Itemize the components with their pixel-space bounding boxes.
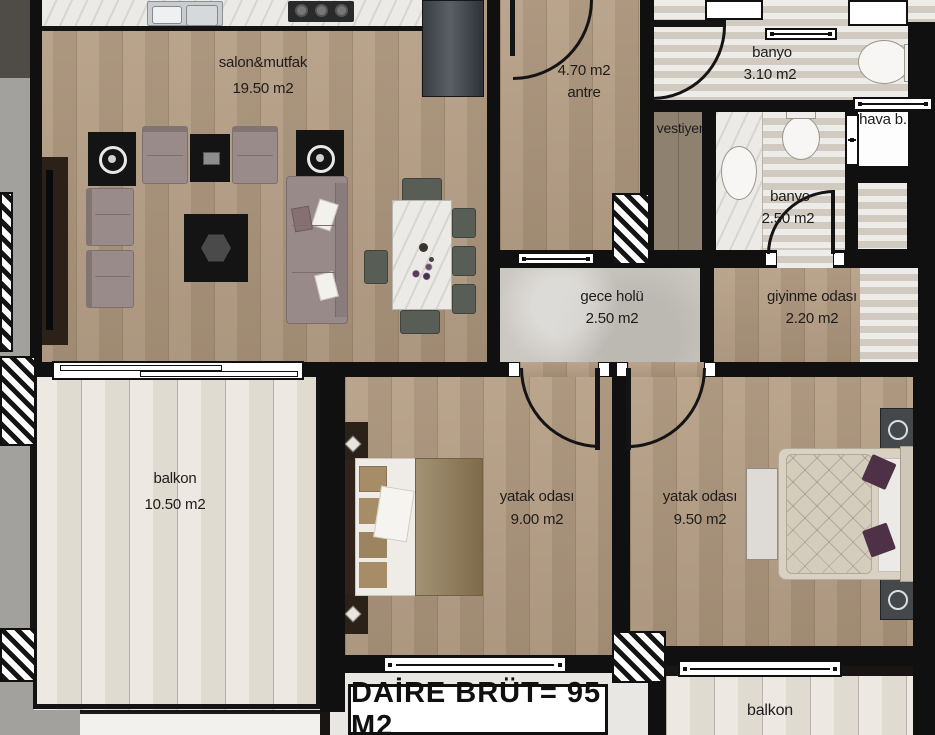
window-hava-left: [845, 114, 859, 166]
column-balcony-bottom-left: [0, 628, 36, 682]
coffee-table-decor: [201, 233, 231, 263]
label-banyo2-area: 2.50 m2: [762, 210, 815, 227]
label-yatak2-area: 9.50 m2: [674, 511, 727, 528]
armchair-left: [142, 126, 188, 184]
kitchen-counter-edge: [40, 26, 430, 31]
label-gece-name: gece holü: [580, 288, 643, 305]
floor-plan: salon&mutfak 19.50 m2 4.70 m2 antre bany…: [0, 0, 935, 735]
exterior-top-left: [0, 0, 30, 78]
balcony-rail-bottom: [33, 704, 320, 709]
floor-balkon: [33, 370, 322, 710]
side-table-left: [88, 132, 136, 186]
bed2-duvet: [786, 454, 872, 574]
wall-salon-left: [30, 0, 42, 368]
column-left-mid: [0, 192, 13, 352]
jamb-banyo2-left: [765, 252, 777, 266]
kitchen-sink: [147, 1, 223, 26]
window-hava-top: [853, 97, 933, 111]
slider-pane-2: [140, 371, 298, 377]
column-antre-corner: [612, 193, 650, 265]
bed1-blanket: [415, 458, 483, 596]
jamb-yatak1-left: [508, 362, 520, 377]
dining-chair-left: [364, 250, 388, 284]
label-antre-name: antre: [567, 84, 600, 101]
sofa-pillow-1: [311, 199, 339, 232]
window-yatak1: [383, 656, 567, 673]
sink-basin-left: [152, 6, 182, 24]
floor-giyinme-right: [860, 268, 918, 364]
column-yatak2-corner: [612, 631, 666, 683]
toilet-banyo2: [782, 116, 820, 160]
nightstand2-bottom: [880, 578, 914, 620]
dining-table: [392, 200, 452, 310]
dining-chair-bottom: [400, 310, 440, 334]
toilet-banyo1: [858, 40, 910, 84]
wall-right-top: [908, 22, 935, 262]
dining-chair-top: [402, 178, 442, 202]
bed1: [333, 458, 483, 596]
label-vestiyer: vestiyer: [657, 120, 704, 136]
label-yatak1-area: 9.00 m2: [511, 511, 564, 528]
floor-balkon2: [666, 676, 920, 735]
wall-vestiyer-banyo2: [702, 112, 716, 260]
door-leaf-entrance: [510, 0, 515, 56]
label-salon-name: salon&mutfak: [219, 54, 307, 71]
bed2-bench: [746, 468, 778, 560]
label-gece-area: 2.50 m2: [586, 310, 639, 327]
armchair-right: [232, 126, 278, 184]
dining-decor-bowls: [419, 243, 428, 252]
door-leaf-banyo2: [831, 190, 835, 254]
window-balkon-slider: [52, 361, 304, 380]
bed2: [778, 446, 914, 582]
door-leaf-banyo1: [650, 20, 726, 27]
label-antre-area: 4.70 m2: [558, 62, 611, 79]
bed2-headboard: [900, 446, 914, 582]
sofa-pillow-3: [291, 206, 313, 233]
banyo1-shelf: [765, 28, 837, 40]
loveseat-top: [86, 188, 134, 246]
sink-basin-right: [186, 5, 218, 26]
banyo1-cabinet-top: [705, 0, 763, 20]
wall-right-bottom: [913, 362, 935, 735]
total-area-box: DAİRE BRÜT= 95 M2: [348, 684, 608, 735]
banyo1-cabinet-right: [848, 0, 908, 26]
stove-cooktop: [288, 1, 354, 22]
label-balkon-name: balkon: [153, 470, 196, 487]
wall-salon-antre: [487, 0, 500, 364]
dining-decor-flower: [408, 259, 439, 287]
fridge: [422, 0, 484, 97]
label-giyinme-name: giyinme odası: [767, 288, 857, 305]
media-decor: [203, 152, 220, 165]
wall-giyinme-right: [918, 250, 935, 364]
exterior-balcony-sill: [80, 712, 320, 735]
total-area-label: DAİRE BRÜT= 95 M2: [351, 677, 605, 735]
dining-chair-right-2: [452, 246, 476, 276]
label-banyo1-area: 3.10 m2: [744, 66, 797, 83]
door-leaf-yatak2: [626, 368, 631, 450]
coffee-table: [184, 214, 248, 282]
label-yatak2-name: yatak odası: [663, 488, 738, 505]
dining-chair-right-3: [452, 284, 476, 314]
sofa-pillow-2: [314, 271, 339, 301]
label-hava: hava b.: [859, 111, 907, 128]
dining-chair-right-1: [452, 208, 476, 238]
door-leaf-yatak1: [595, 368, 600, 450]
jamb-banyo2-right: [833, 252, 845, 266]
loveseat-bottom: [86, 250, 134, 308]
label-giyinme-area: 2.20 m2: [786, 310, 839, 327]
window-gece-threshold: [517, 252, 595, 265]
media-table: [190, 134, 230, 182]
kitchen-counter: [40, 0, 430, 27]
label-yatak1-name: yatak odası: [500, 488, 575, 505]
label-balkon-area: 10.50 m2: [145, 496, 206, 513]
wall-gece-giyinme: [700, 252, 714, 364]
exterior-left-strip2: [0, 446, 30, 628]
nightstand2-top: [880, 408, 914, 450]
window-yatak2: [678, 660, 842, 677]
label-salon-area: 19.50 m2: [233, 80, 294, 97]
column-balcony-top-left: [0, 356, 36, 446]
label-banyo2-name: banyo: [770, 188, 810, 205]
tv-screen: [46, 170, 53, 330]
label-balkon2: balkon: [747, 702, 793, 720]
label-banyo1-name: banyo: [752, 44, 792, 61]
sofa: [286, 176, 348, 324]
